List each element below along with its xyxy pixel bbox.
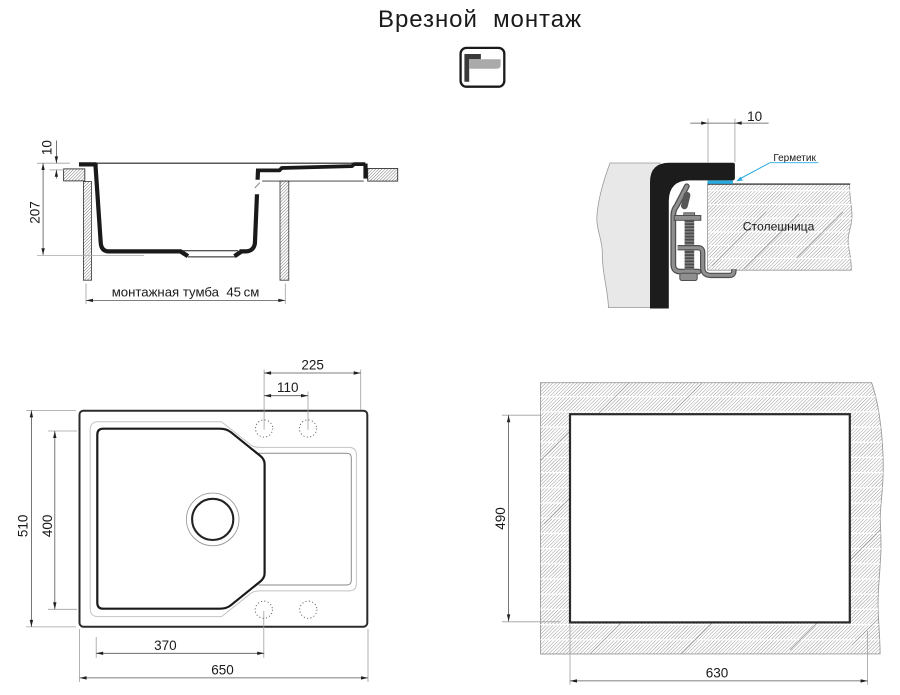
svg-text:650: 650 — [211, 662, 234, 677]
svg-text:490: 490 — [493, 507, 508, 530]
svg-text:400: 400 — [40, 515, 55, 538]
svg-text:монтажная тумба 45 см: монтажная тумба 45 см — [112, 285, 260, 300]
svg-text:630: 630 — [706, 665, 729, 680]
svg-text:370: 370 — [154, 638, 177, 653]
svg-text:225: 225 — [301, 357, 324, 372]
svg-text:10: 10 — [40, 140, 55, 155]
svg-text:207: 207 — [28, 201, 43, 224]
svg-text:510: 510 — [16, 515, 31, 538]
svg-text:10: 10 — [747, 109, 762, 124]
svg-text:Врезной монтаж: Врезной монтаж — [378, 6, 582, 33]
svg-text:Столешница: Столешница — [743, 219, 815, 233]
svg-text:110: 110 — [277, 380, 299, 395]
